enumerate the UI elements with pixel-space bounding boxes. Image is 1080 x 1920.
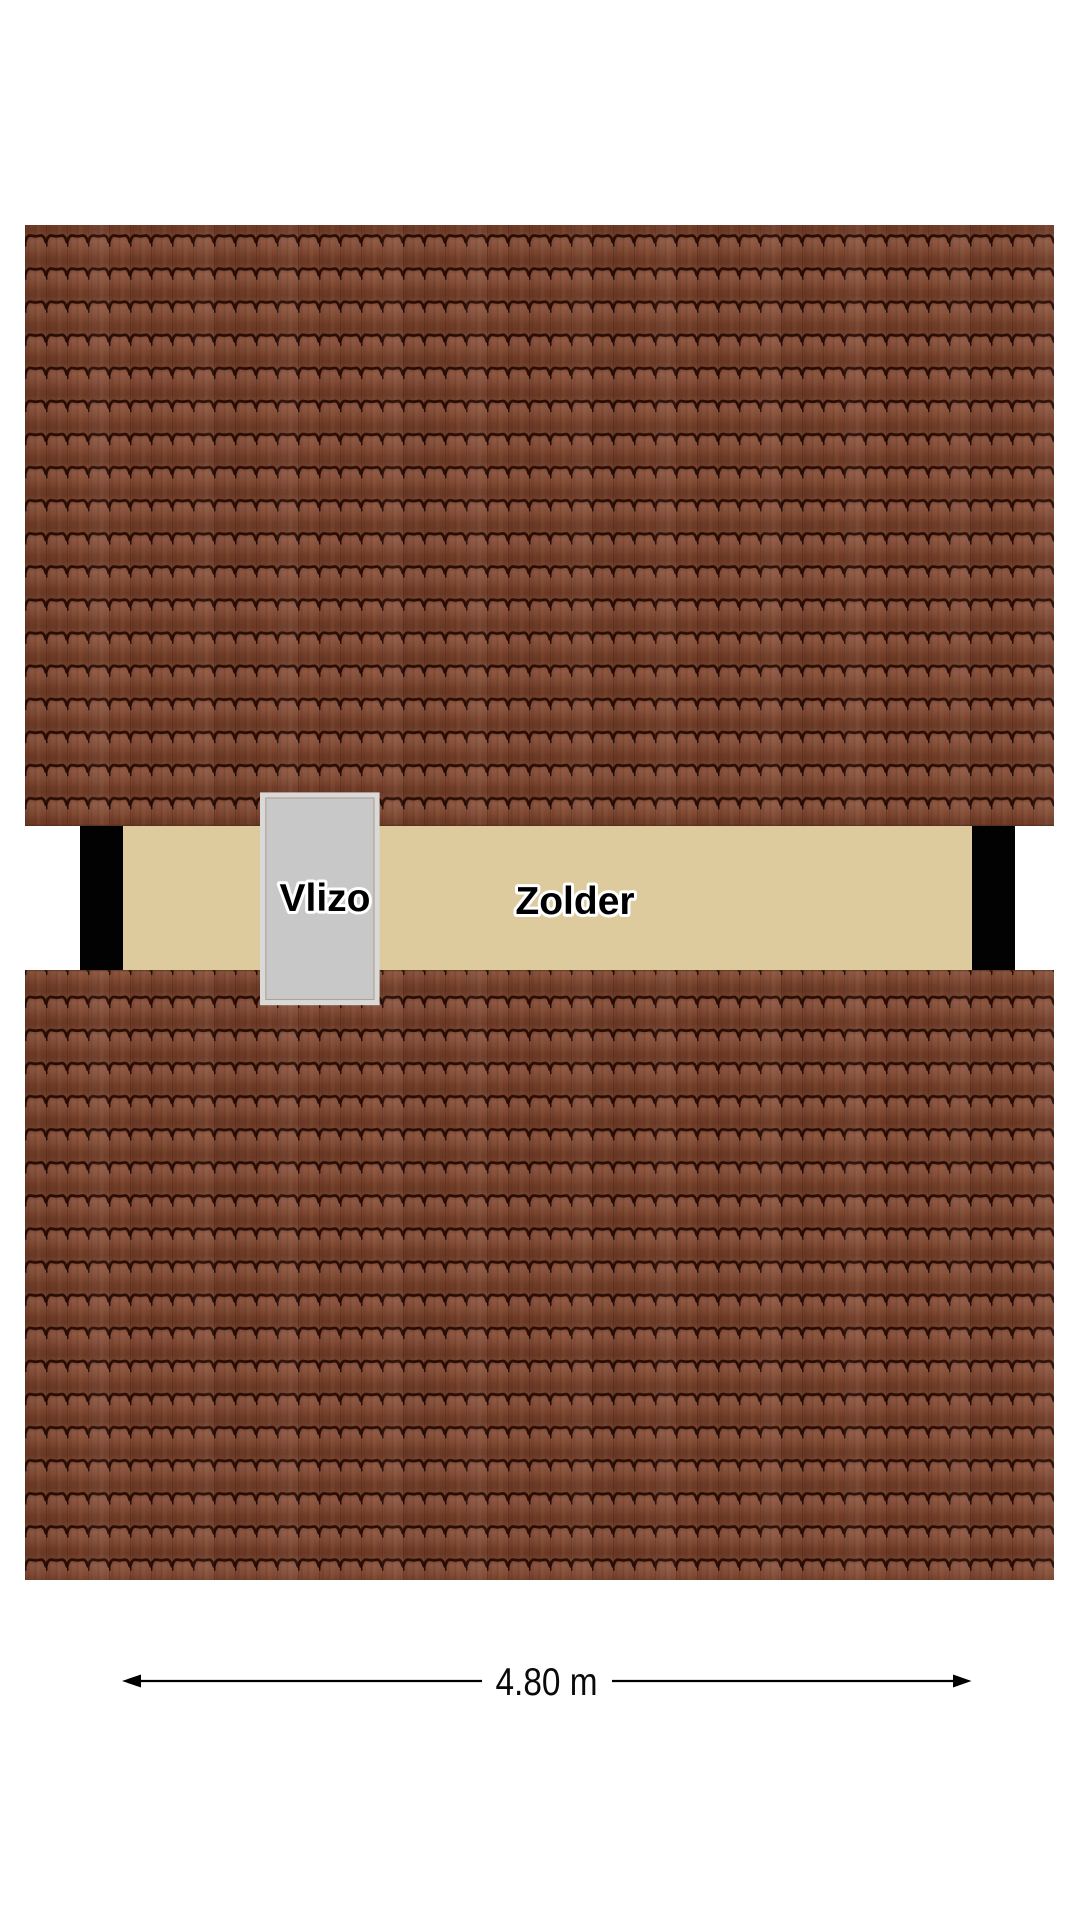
svg-text:4.80 m: 4.80 m [496,1661,598,1704]
svg-text:Zolder: Zolder [515,880,634,923]
svg-text:Vlizo: Vlizo [279,877,370,920]
